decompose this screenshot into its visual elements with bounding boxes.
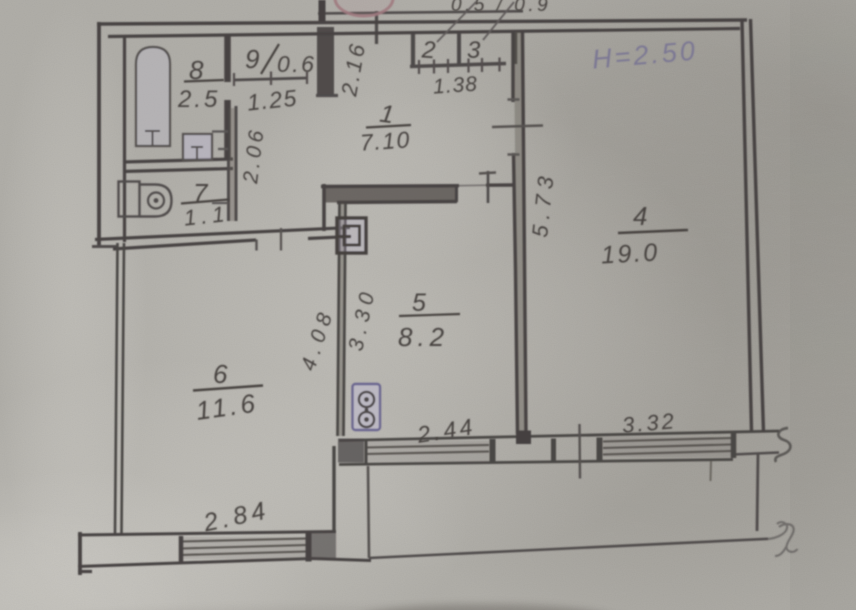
svg-text:4: 4: [633, 201, 647, 231]
svg-text:0.5 / 0.9: 0.5 / 0.9: [451, 0, 551, 16]
svg-text:1.25: 1.25: [246, 84, 299, 115]
svg-text:2.5: 2.5: [177, 86, 220, 113]
svg-text:1.1: 1.1: [183, 201, 231, 231]
svg-text:7.10: 7.10: [359, 126, 411, 155]
svg-text:1.38: 1.38: [432, 73, 478, 99]
svg-text:19.0: 19.0: [600, 238, 660, 269]
svg-text:6: 6: [213, 359, 228, 389]
svg-text:3.32: 3.32: [621, 408, 678, 438]
svg-text:8.2: 8.2: [398, 322, 449, 352]
svg-text:5: 5: [412, 289, 426, 317]
svg-text:2: 2: [420, 36, 436, 64]
svg-text:9: 9: [245, 44, 259, 74]
svg-text:0.6: 0.6: [277, 51, 316, 77]
svg-text:3: 3: [467, 37, 481, 64]
